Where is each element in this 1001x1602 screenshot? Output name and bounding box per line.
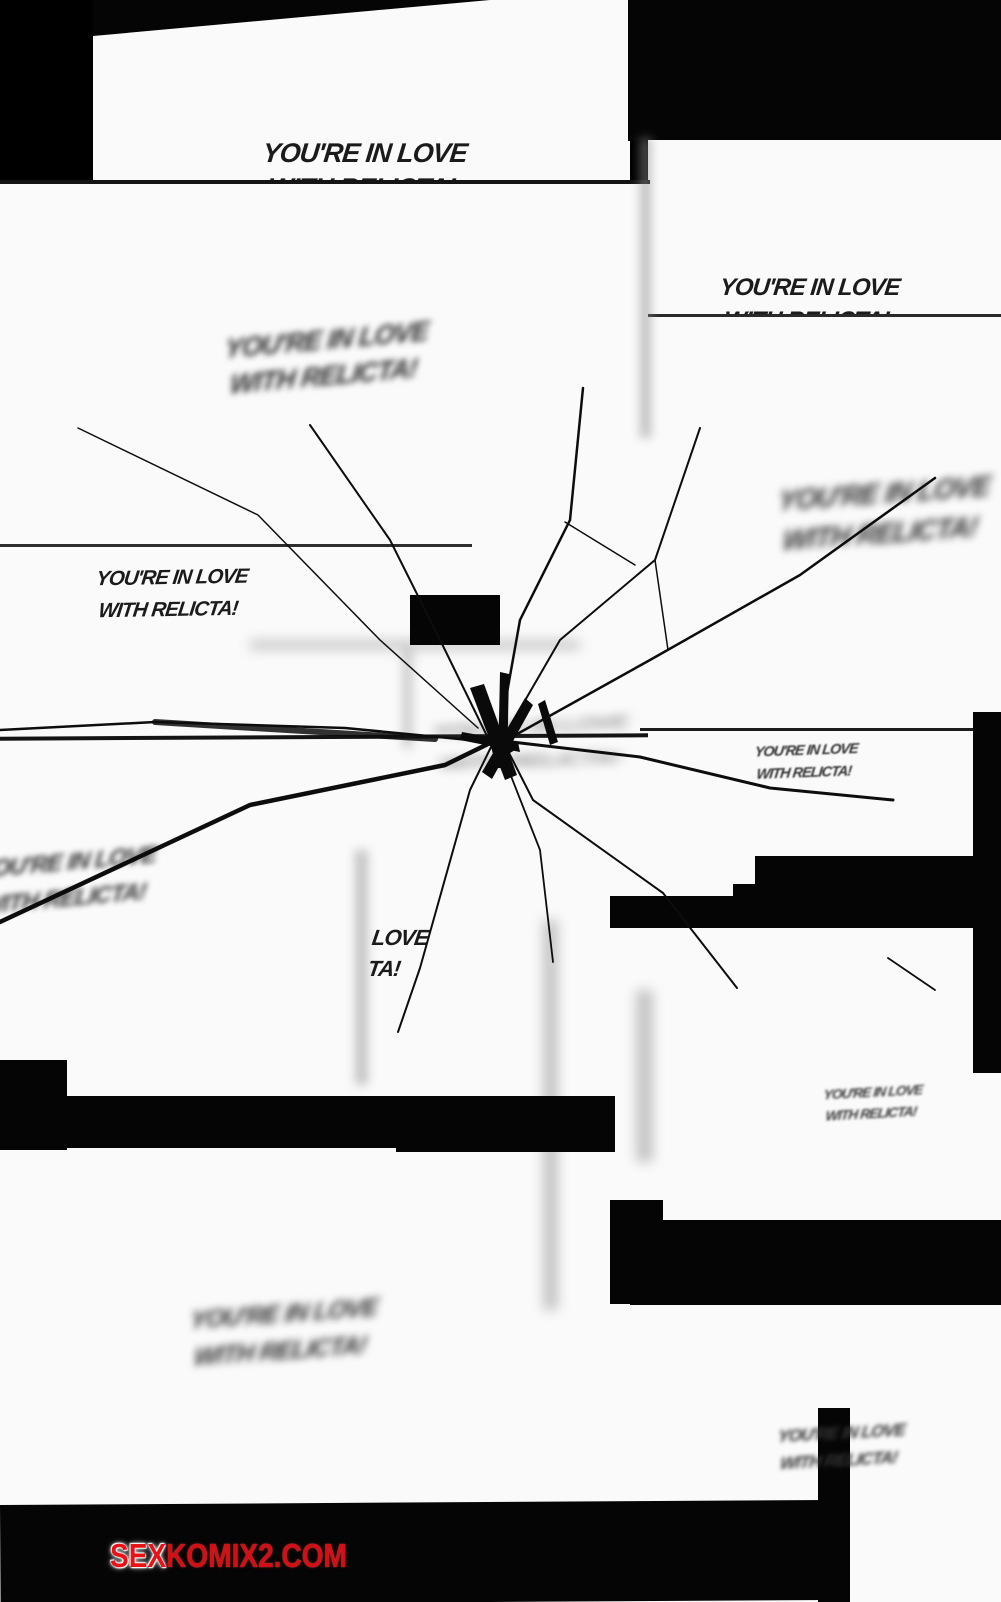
- shattered-glass-cracks: [0, 0, 1001, 1602]
- watermark-prefix: SEX: [110, 1537, 166, 1574]
- watermark: SEXKOMIX2.COM: [110, 1537, 347, 1575]
- comic-page: YOU'RE IN LOVE WITH RELICTA! YOU'RE IN L…: [0, 0, 1001, 1602]
- watermark-suffix: KOMIX2.COM: [166, 1537, 347, 1574]
